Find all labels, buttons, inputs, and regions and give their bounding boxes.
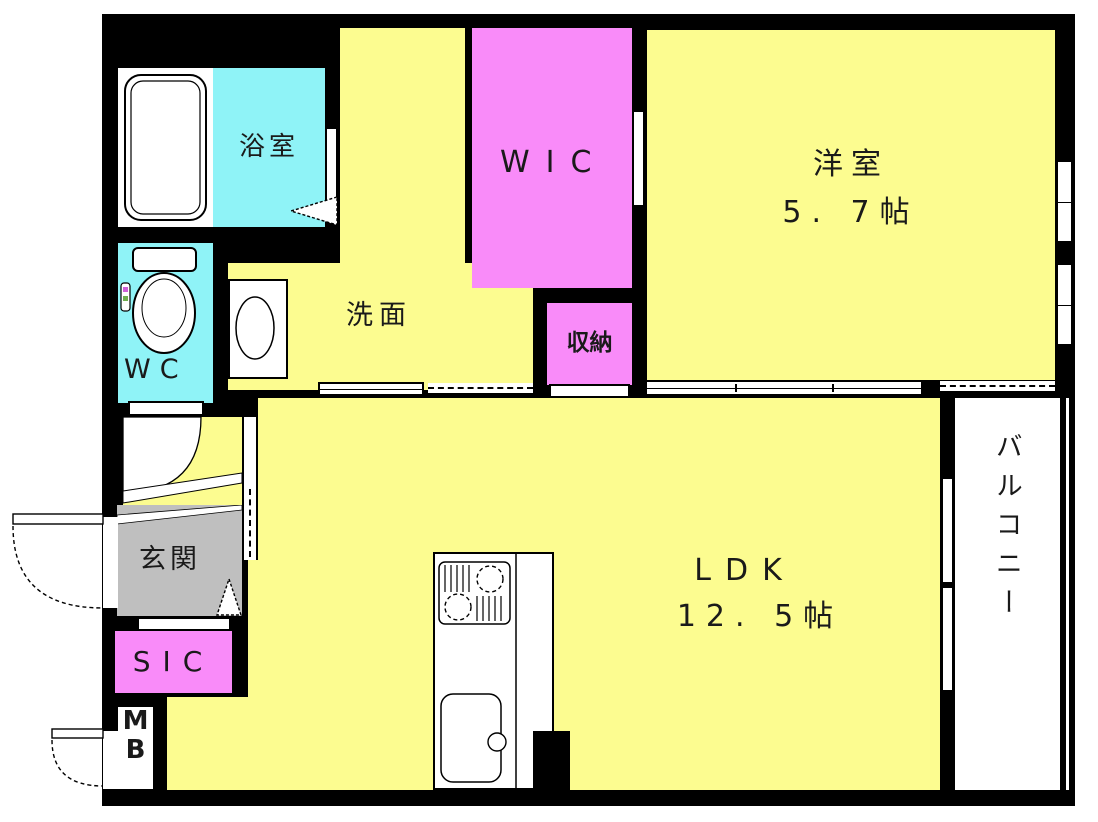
sliding-door-western-ldk (645, 380, 923, 396)
wc-door-lintel (128, 401, 204, 416)
label-sic: SIC (133, 647, 215, 678)
room-sic: SIC (115, 631, 232, 693)
bathtub-area (118, 68, 213, 227)
balcony-sliding-door-panel (941, 477, 954, 584)
label-wc: WC (124, 355, 188, 385)
label-entrance: 玄関 (139, 545, 201, 575)
toilet-icon (118, 245, 213, 363)
entrance-ldk-door-frame (242, 417, 258, 560)
meter-box: M B (118, 707, 153, 789)
label-washroom: 洗面 (346, 301, 412, 331)
entrance-door-swing-arc (8, 508, 120, 616)
balcony-sliding-door-panel (941, 586, 954, 692)
label-bath: 浴室 (239, 133, 299, 162)
sic-door-lintel (137, 617, 231, 631)
label-western: 洋室 (751, 148, 951, 181)
balcony: バルコニー (955, 398, 1060, 790)
label-balcony: バルコニー (991, 432, 1021, 627)
label-ldk: LDK (645, 554, 845, 587)
balcony-outer-rail (1063, 398, 1072, 790)
wic-door-panel (632, 110, 645, 207)
floor-plan: 浴室 洗 洗面 WIC 収納 洋室 5. 7帖 (0, 0, 1098, 822)
washroom-ldk-dashed-track (428, 383, 533, 393)
storage-door-lintel (549, 384, 630, 398)
kitchen-pillar (533, 731, 570, 790)
sink-icon (228, 278, 290, 382)
label-meter-box-m: M (118, 707, 153, 736)
window-icon (1056, 160, 1073, 243)
bathtub-icon (118, 68, 213, 227)
entrance-direction-arrow-icon (214, 576, 244, 618)
label-wic: WIC (500, 146, 607, 179)
hall-door-swing (123, 417, 242, 507)
meter-box-door-swing-arc (45, 722, 120, 794)
label-storage: 収納 (567, 331, 613, 356)
bath-door-arrow-icon (288, 194, 340, 228)
entrance-step-line (117, 505, 242, 529)
room-wc: WC (118, 243, 213, 403)
room-storage: 収納 (547, 303, 632, 385)
sliding-door-washroom-ldk (318, 382, 424, 396)
label-western-size: 5. 7帖 (731, 196, 971, 229)
label-ldk-size: 12. 5帖 (630, 600, 890, 633)
window-icon (1056, 263, 1073, 346)
room-wic: WIC (472, 28, 632, 288)
balcony-top-open-edge (940, 381, 1055, 391)
label-meter-box-b: B (118, 736, 153, 765)
